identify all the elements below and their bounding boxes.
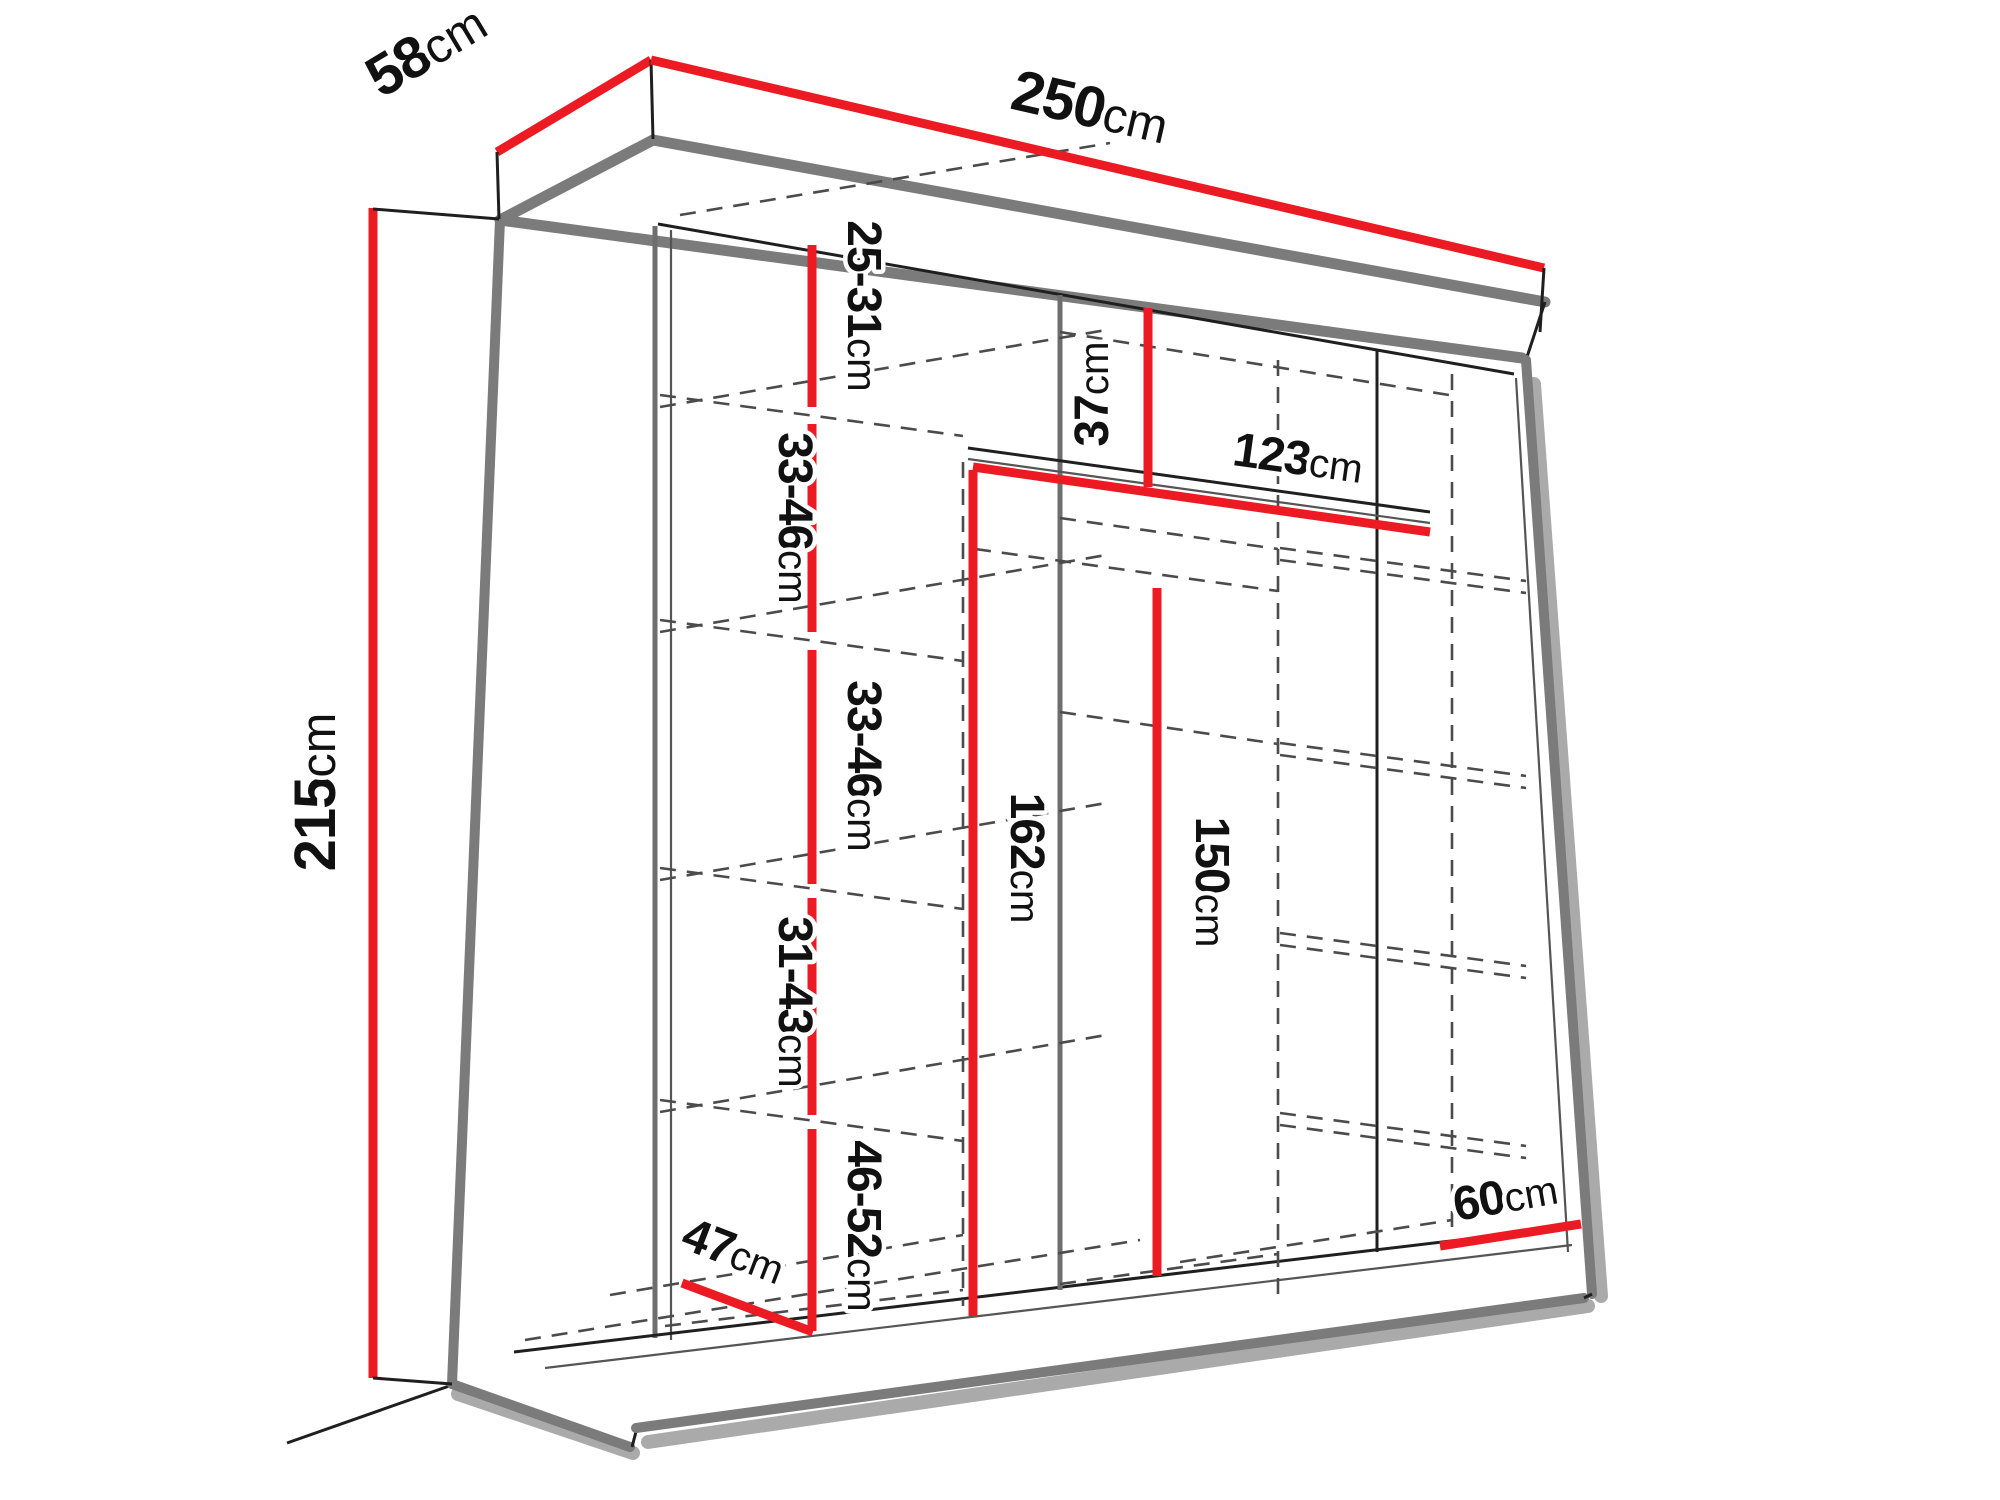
- diagram-canvas: 58cm 250cm 215cm 25-31cm 33-46cm 33-46cm…: [0, 0, 2000, 1500]
- dimension-hang-height: 150cm: [1157, 588, 1238, 1276]
- rail-width-label: 123cm: [1230, 423, 1367, 494]
- dimension-top-section: 37cm: [1066, 308, 1148, 487]
- width-label: 250cm: [1006, 57, 1175, 156]
- dimension-right-width: 60cm: [1440, 1162, 1581, 1246]
- wardrobe-dimension-diagram: 58cm 250cm 215cm 25-31cm 33-46cm 33-46cm…: [0, 0, 2000, 1500]
- floor-dashed: [525, 1220, 1452, 1340]
- top-section-label: 37cm: [1066, 341, 1119, 446]
- hang-height-label: 150cm: [1185, 817, 1238, 948]
- shelf-upper-a-label: 33-46cm: [768, 432, 821, 604]
- dimension-rail-width: 123cm: [973, 423, 1430, 532]
- dimension-height: 215cm: [283, 208, 499, 1384]
- dimension-mid-height: 162cm: [973, 470, 1053, 1316]
- depth-label: 58cm: [355, 0, 498, 110]
- shelf-bottom-label: 46-52cm: [837, 1140, 890, 1312]
- shelf-top-label: 25-31cm: [837, 220, 890, 392]
- mid-height-label: 162cm: [1000, 793, 1053, 924]
- shelf-upper-b-label: 33-46cm: [837, 680, 890, 852]
- right-width-label: 60cm: [1449, 1162, 1562, 1232]
- dimension-shelf-column: 25-31cm 33-46cm 33-46cm 31-43cm 46-52cm: [768, 220, 890, 1331]
- shelf-lower-label: 31-43cm: [768, 916, 821, 1088]
- floor-line: [287, 1385, 452, 1443]
- height-label: 215cm: [283, 713, 348, 872]
